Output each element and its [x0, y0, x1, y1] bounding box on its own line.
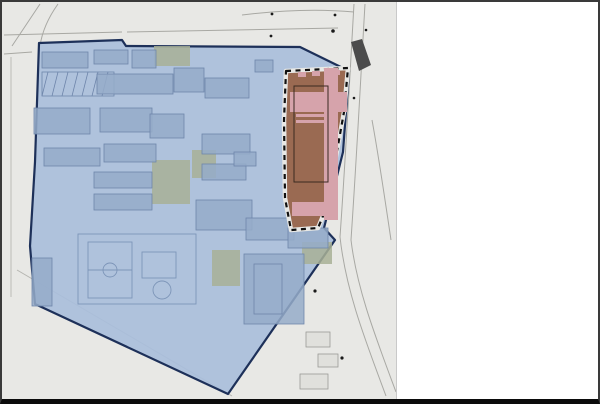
legend-panel — [396, 2, 598, 399]
site-plan-svg — [2, 2, 396, 399]
site-plan-map — [2, 2, 396, 399]
screenshot-frame — [0, 0, 600, 404]
